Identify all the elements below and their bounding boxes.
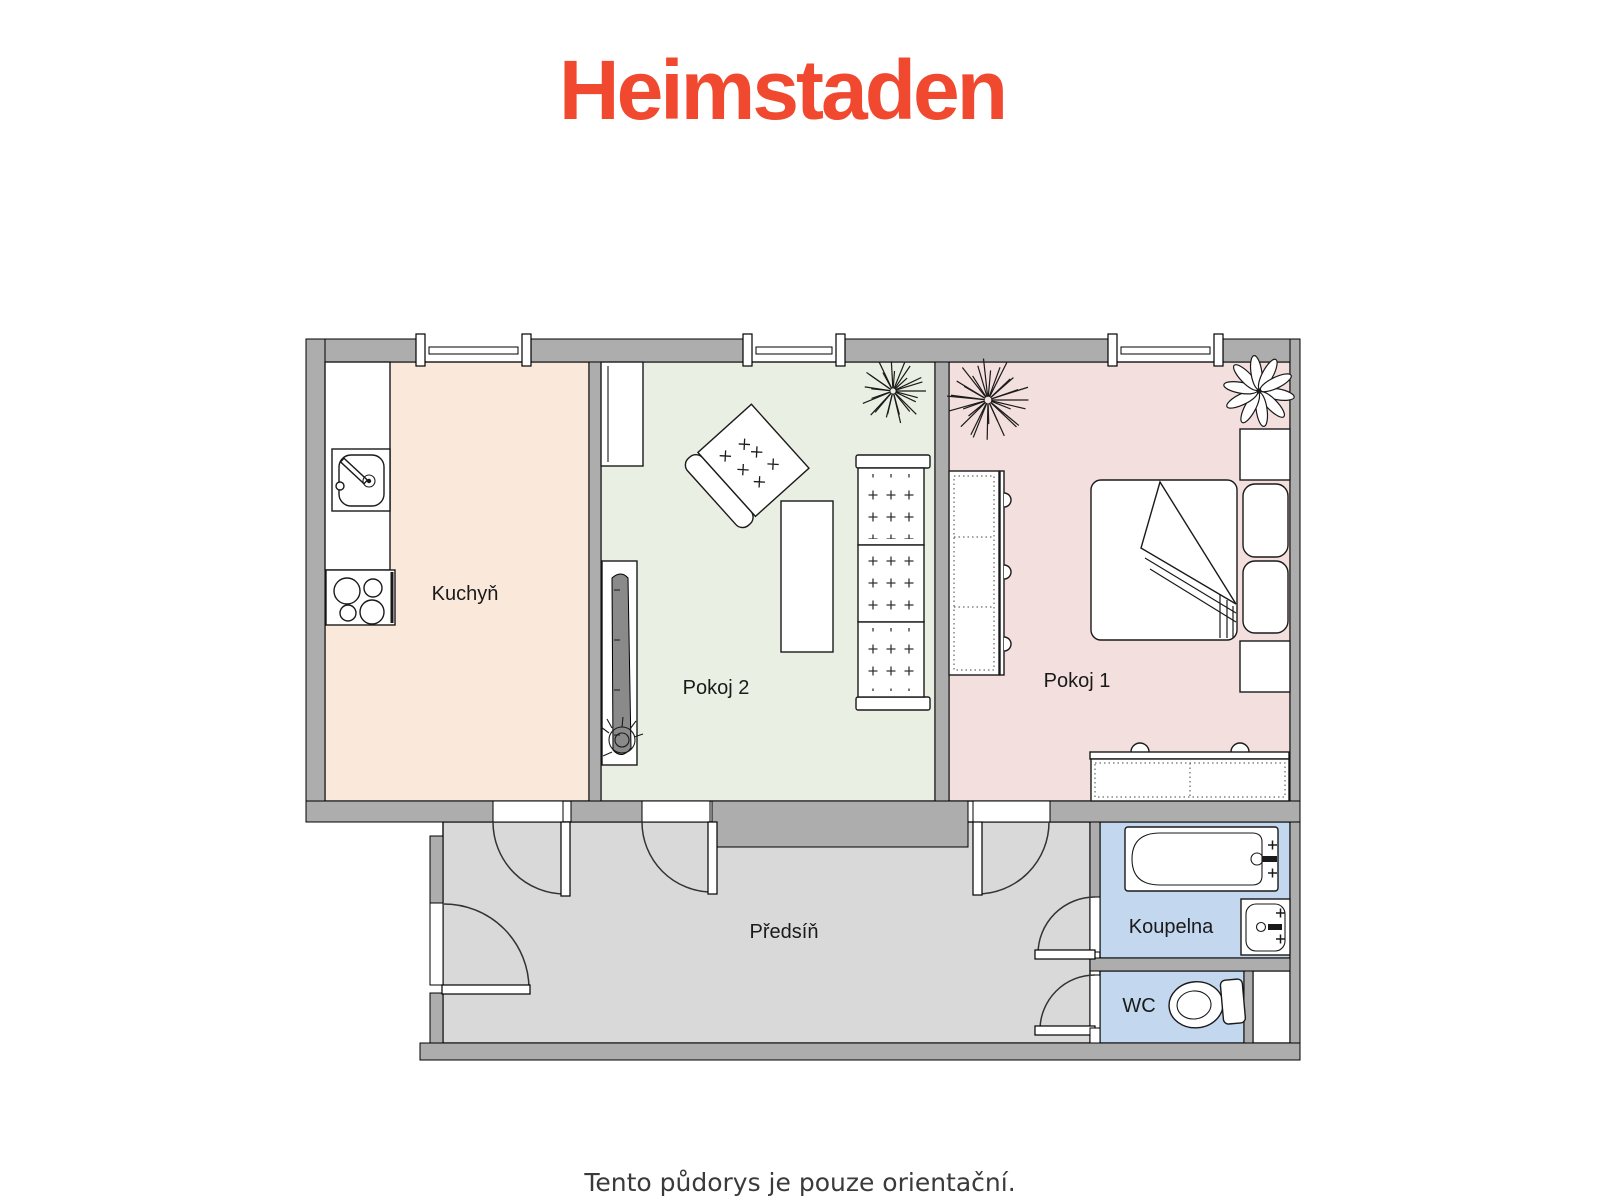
wardrobe-small: [601, 362, 643, 466]
bathtub: [1125, 827, 1278, 891]
window: [743, 334, 845, 366]
wall-segment: [430, 836, 443, 903]
wall-segment: [526, 339, 748, 362]
wall-segment: [430, 993, 443, 1043]
window: [1108, 334, 1223, 366]
sofa-cushion: [864, 628, 918, 691]
wall-segment: [1218, 339, 1300, 362]
wall-segment: [935, 362, 949, 801]
wall-segment: [420, 1043, 1300, 1060]
tap-icon: [1268, 924, 1282, 930]
kitchen-sink: [332, 449, 390, 511]
sofa-cushion: [864, 474, 918, 539]
wall-segment: [1050, 801, 1300, 822]
tap-icon: [1263, 856, 1277, 862]
room-label-pokoj2: Pokoj 2: [683, 677, 750, 699]
tv-cabinet: [602, 561, 637, 765]
coffee-table: [781, 501, 833, 652]
wall-segment: [1244, 971, 1253, 1043]
pillow: [1243, 561, 1288, 633]
sofa: [856, 455, 930, 710]
washbasin: [1241, 899, 1290, 955]
window: [416, 334, 531, 366]
wall-segment: [571, 801, 642, 822]
floorplan-canvas: Heimstaden: [0, 0, 1600, 1200]
wall-segment: [306, 339, 325, 822]
bed: [1091, 480, 1237, 640]
room-label-pokoj1: Pokoj 1: [1044, 670, 1111, 692]
sofa-cushion: [864, 551, 918, 616]
room-label-koupelna: Koupelna: [1129, 916, 1214, 938]
wall-segment: [306, 801, 493, 822]
dresser: [1090, 743, 1289, 801]
brand-logo: Heimstaden: [559, 43, 1005, 137]
wall-segment: [1090, 958, 1290, 971]
pillow: [1243, 484, 1288, 557]
nightstand: [1240, 641, 1290, 692]
kitchen-furniture: [325, 362, 395, 625]
room-label-predsin: Předsíň: [750, 921, 819, 943]
wall-segment: [589, 362, 601, 801]
disclaimer-text: Tento půdorys je pouze orientační.: [583, 1168, 1015, 1197]
wall-segment: [1090, 822, 1100, 897]
shaft: [1253, 971, 1290, 1043]
wall-segment: [840, 339, 1113, 362]
wall-block: [712, 801, 968, 847]
nightstand: [1240, 429, 1290, 480]
kitchen-stove: [326, 570, 395, 625]
floorplan-page: Heimstaden: [0, 0, 1600, 1200]
room-label-wc: WC: [1122, 995, 1155, 1017]
room-label-kuchyn: Kuchyň: [432, 583, 499, 605]
wardrobe-tall: [949, 471, 1011, 675]
wall-segment: [1290, 339, 1300, 1060]
